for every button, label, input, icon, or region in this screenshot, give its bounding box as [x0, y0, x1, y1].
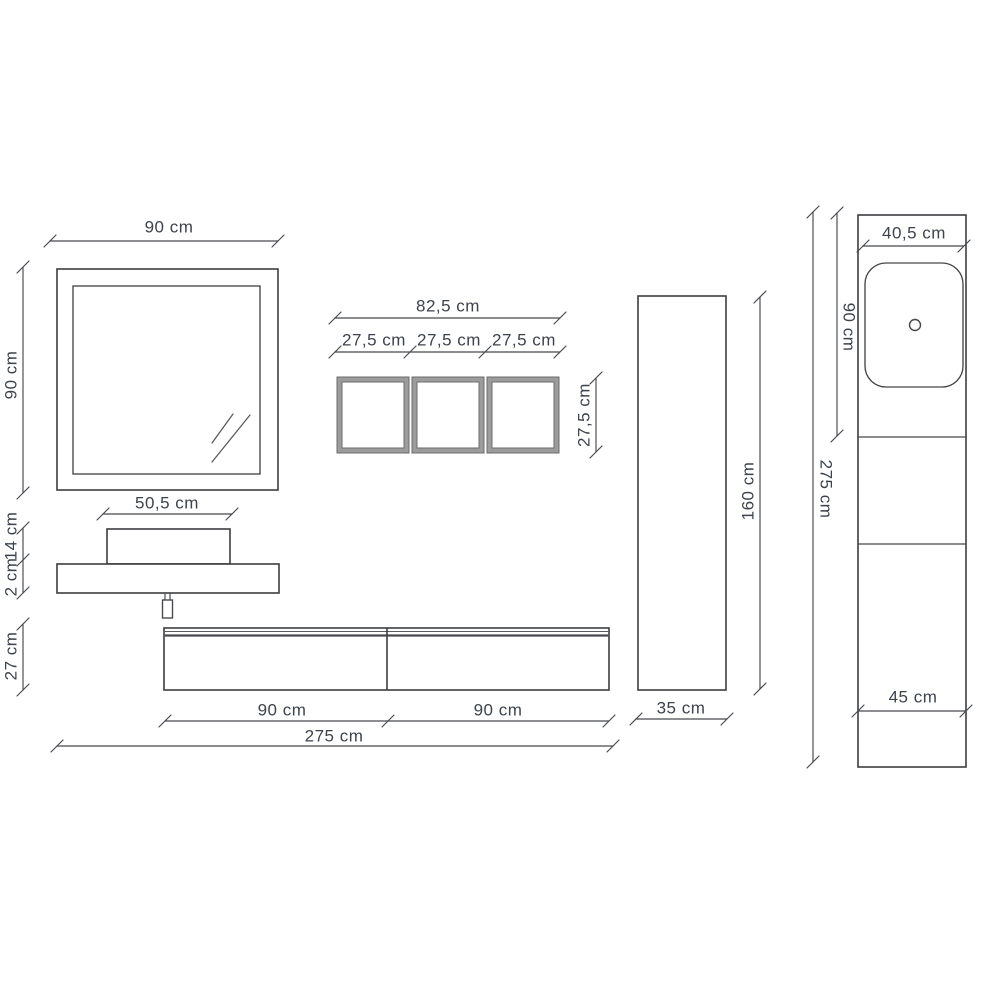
dim-mirror-width: 90 cm — [44, 218, 284, 248]
dim-side-basin-section: 90 cm — [831, 207, 859, 442]
total-width-label: 275 cm — [305, 727, 364, 746]
shelves-total-width-label: 82,5 cm — [416, 297, 480, 316]
countertop-thickness-label: 2 cm — [2, 558, 21, 597]
tall-cabinet-width-label: 35 cm — [657, 699, 706, 718]
side-basin-section-height-label: 90 cm — [840, 303, 859, 352]
shelf-module-opening — [342, 382, 404, 448]
base-left-module-width-label: 90 cm — [258, 701, 307, 720]
washbasin-body — [107, 529, 230, 564]
shelf-module2-width-label: 27,5 cm — [417, 331, 481, 350]
mirror-glass — [73, 286, 260, 474]
washbasin-width-label: 50,5 cm — [135, 494, 199, 513]
base-right-module-width-label: 90 cm — [474, 701, 523, 720]
dim-base-cabinet-height: 27 cm — [2, 618, 30, 696]
open-shelves-front-view: 82,5 cm 27,5 cm 27,5 cm 27,5 cm 27,5 cm — [329, 297, 602, 459]
drain-fitting — [163, 600, 173, 618]
dim-washbasin-width: 50,5 cm — [97, 494, 238, 521]
side-total-height-label: 275 cm — [817, 460, 836, 519]
washbasin-front-view: 50,5 cm 14 cm 2 cm — [2, 494, 280, 619]
tall-cabinet-front-view: 160 cm 35 cm — [630, 291, 766, 725]
shelf-module-opening — [492, 382, 554, 448]
dim-base-cabinet-modules: 90 cm 90 cm — [159, 701, 615, 728]
mirror-width-label: 90 cm — [145, 218, 194, 237]
dim-total-width: 275 cm — [51, 727, 619, 753]
dim-countertop-thickness: 2 cm — [2, 558, 30, 599]
dim-mirror-height: 90 cm — [2, 261, 30, 499]
shelf-module-1 — [337, 377, 409, 453]
dim-tall-cabinet-width: 35 cm — [630, 699, 733, 726]
drain-hole-icon — [910, 320, 921, 331]
basin-height-label: 14 cm — [2, 512, 21, 561]
shelf-module1-width-label: 27,5 cm — [342, 331, 406, 350]
side-base-depth-label: 45 cm — [889, 688, 938, 707]
base-cabinet-front-view: 27 cm 90 cm 90 cm 275 cm — [2, 618, 620, 752]
dim-side-total-height: 275 cm — [807, 206, 836, 768]
shelf-module-opening — [417, 382, 479, 448]
side-view-column: 40,5 cm 90 cm 275 cm 45 cm — [807, 206, 972, 768]
dim-shelves-total-width: 82,5 cm — [329, 297, 566, 325]
shelf-module3-width-label: 27,5 cm — [492, 331, 556, 350]
mirror-height-label: 90 cm — [2, 351, 21, 400]
mirror-front-view: 90 cm 90 cm — [2, 218, 285, 500]
dim-shelves-height: 27,5 cm — [575, 372, 603, 458]
side-top-depth-label: 40,5 cm — [882, 224, 946, 243]
shelf-module-2 — [412, 377, 484, 453]
dimension-drawing: 90 cm 90 cm 82,5 cm 27,5 cm 27,5 cm 27,5… — [0, 0, 990, 990]
drain-stem — [165, 593, 170, 600]
base-cabinet-height-label: 27 cm — [2, 632, 21, 681]
tall-cabinet-body — [638, 296, 726, 690]
drawing-canvas: 90 cm 90 cm 82,5 cm 27,5 cm 27,5 cm 27,5… — [0, 0, 990, 990]
tall-cabinet-height-label: 160 cm — [739, 462, 758, 521]
shelves-height-label: 27,5 cm — [575, 383, 594, 447]
dim-shelf-modules: 27,5 cm 27,5 cm 27,5 cm — [329, 331, 566, 359]
shelf-module-3 — [487, 377, 559, 453]
dim-tall-cabinet-height: 160 cm — [739, 291, 767, 695]
washbasin-countertop — [57, 564, 279, 593]
drain-trap-icon — [163, 593, 173, 618]
